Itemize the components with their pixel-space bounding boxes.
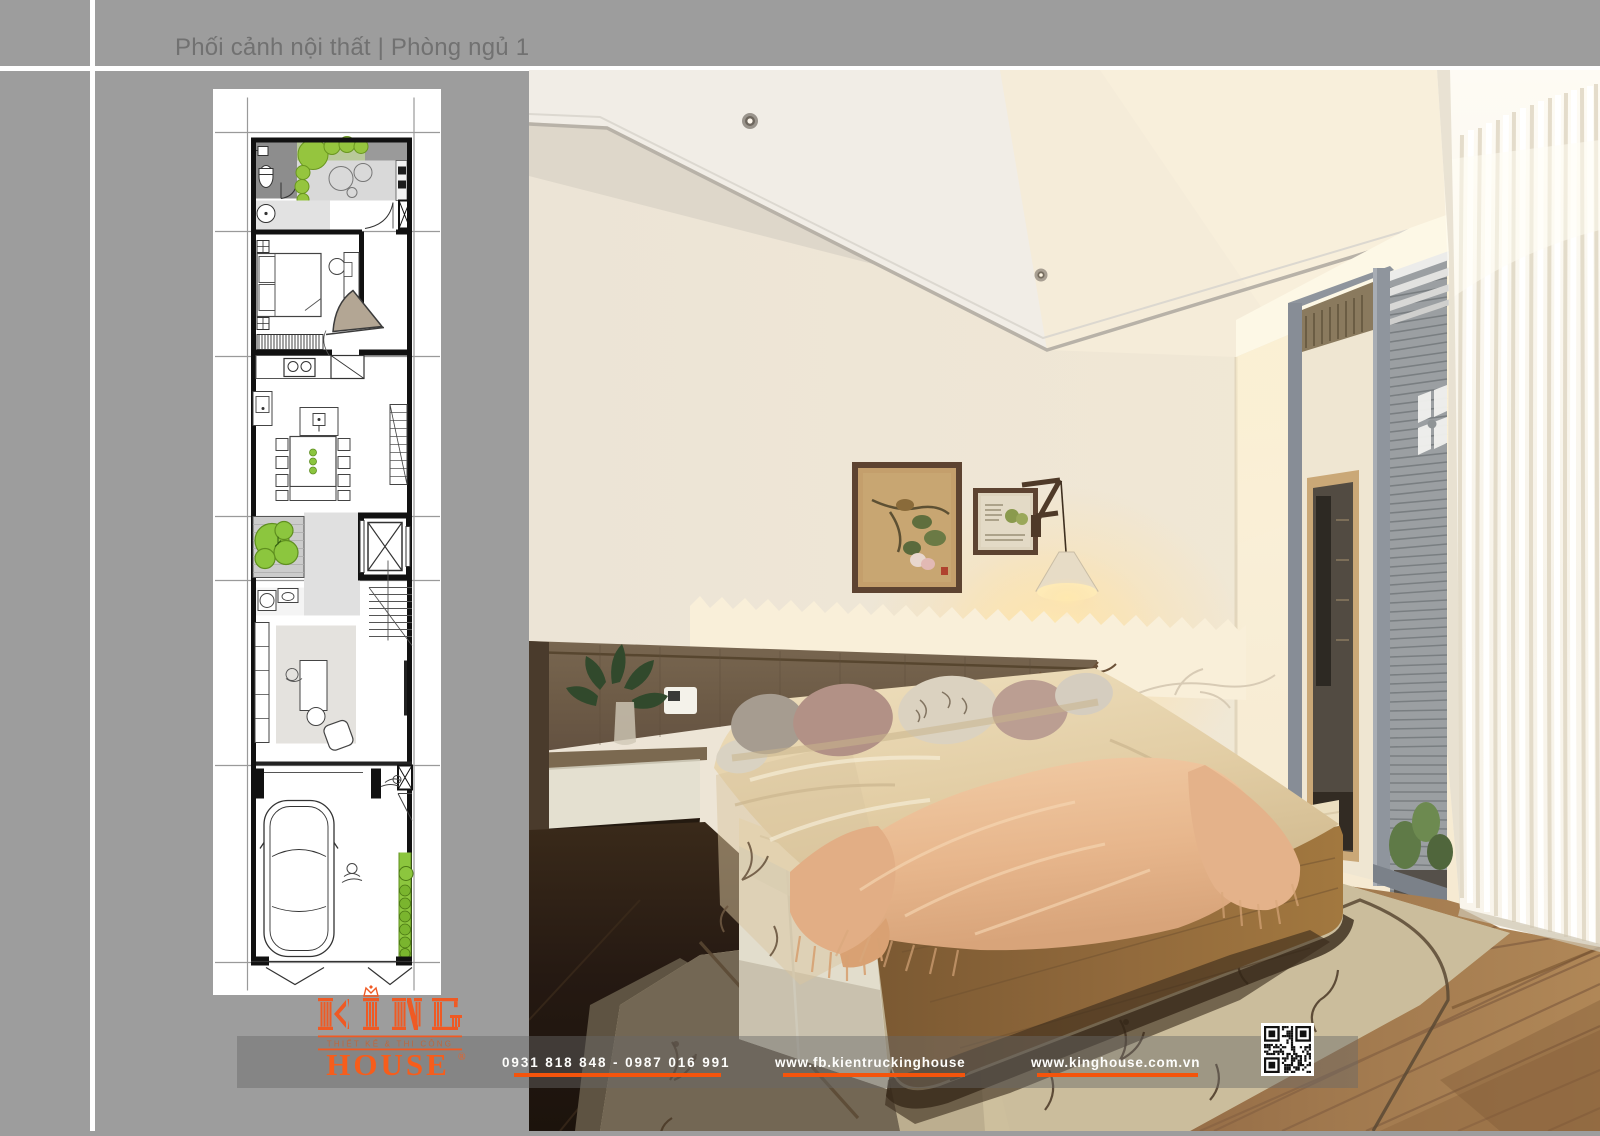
- svg-text:HOUSE: HOUSE: [326, 1047, 450, 1082]
- svg-text:®: ®: [458, 1052, 466, 1063]
